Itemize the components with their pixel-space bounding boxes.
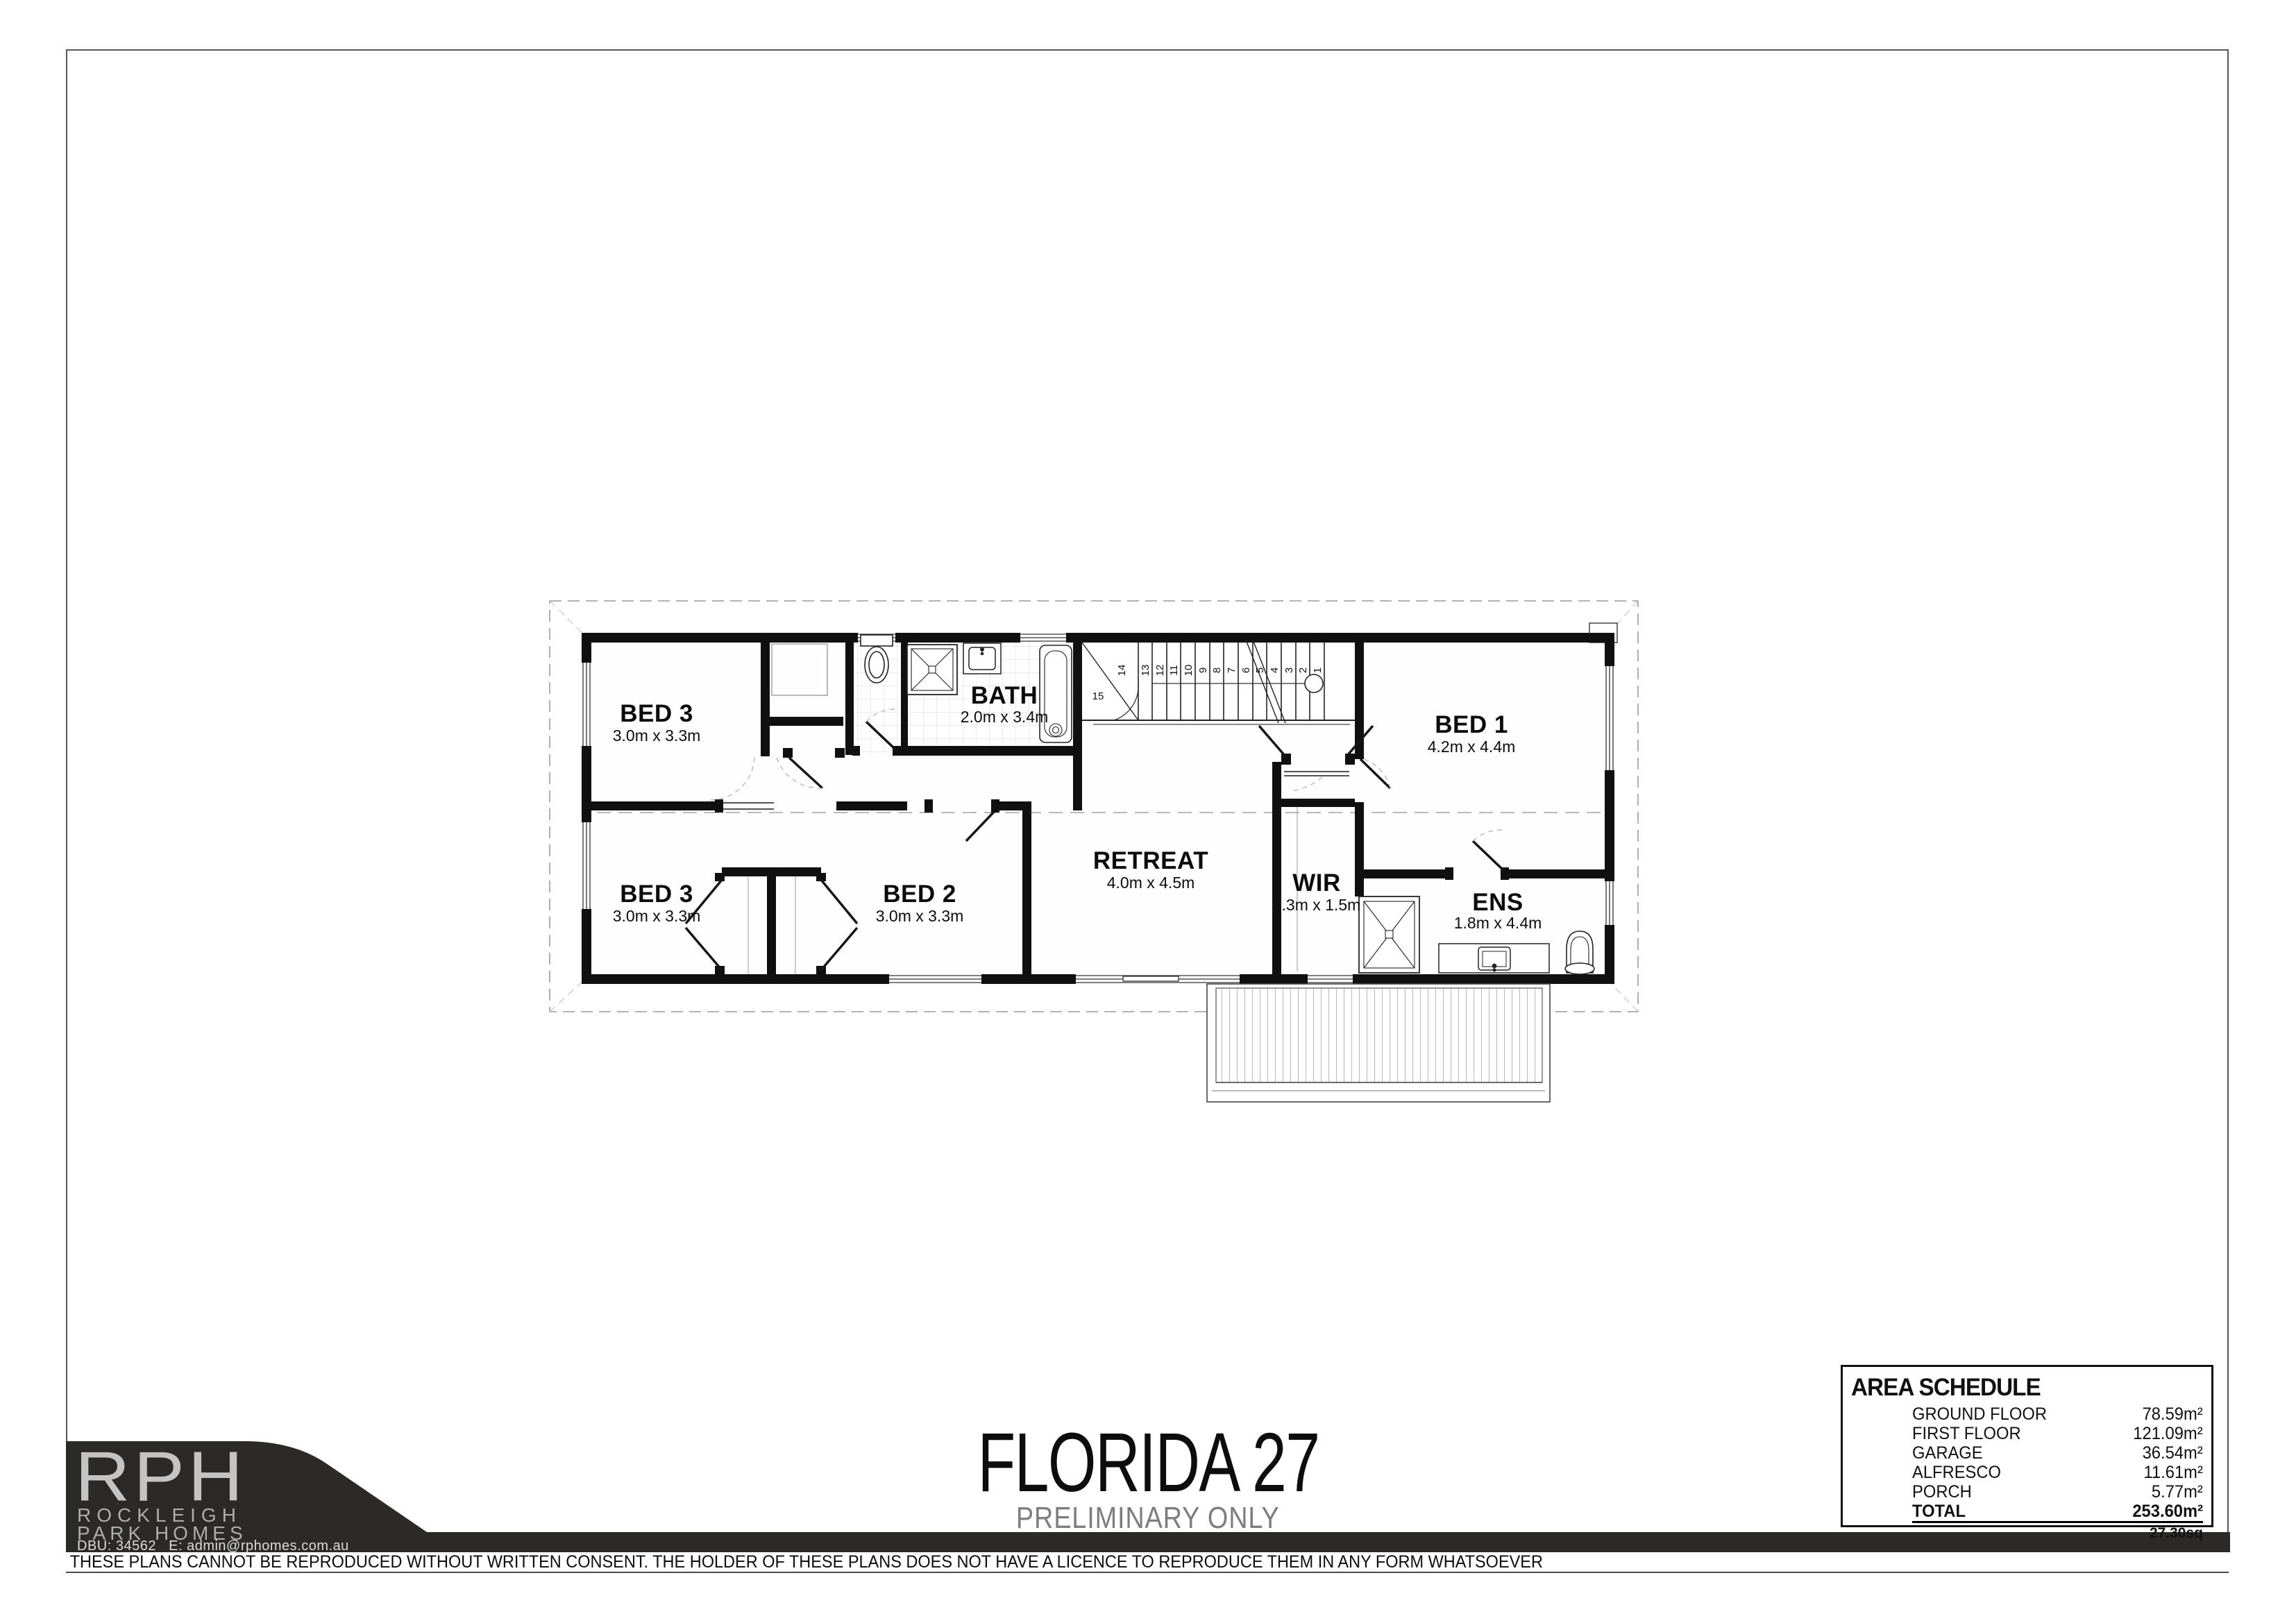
stair-number: 15 <box>1092 690 1104 702</box>
area-row-label: ALFRESCO <box>1912 1463 2001 1482</box>
stair-number: 11 <box>1168 665 1180 676</box>
window <box>582 822 591 909</box>
stair-number: 2 <box>1297 668 1309 673</box>
area-row-value: 121.09m² <box>2134 1424 2203 1443</box>
area-row-value: 36.54m² <box>2143 1443 2203 1463</box>
room-label: ENS <box>1472 889 1523 916</box>
area-total-row: TOTAL 253.60m² <box>1912 1502 2203 1523</box>
stair-number: 4 <box>1269 668 1281 673</box>
room-label: RETREAT <box>1093 847 1208 874</box>
area-row: PORCH 5.77m² <box>1912 1482 2203 1502</box>
area-row: GROUND FLOOR 78.59m² <box>1912 1404 2203 1424</box>
room-dims: 1.8m x 4.4m <box>1454 914 1542 932</box>
room-label: BATH <box>971 682 1038 709</box>
window <box>1076 974 1240 984</box>
stair-number: 12 <box>1154 665 1166 677</box>
area-row-label: GROUND FLOOR <box>1912 1404 2047 1424</box>
floor-plan: 1 2 3 4 5 6 7 8 9 10 11 12 13 14 15 <box>527 583 1680 1138</box>
stair-number: 5 <box>1254 668 1266 673</box>
room-label: BED 1 <box>1435 711 1508 738</box>
stair-number: 7 <box>1226 668 1238 673</box>
area-row-label: GARAGE <box>1912 1443 1983 1463</box>
room-dims: 2.0m x 3.4m <box>961 708 1049 726</box>
room-label: WIR <box>1292 869 1341 897</box>
area-schedule-title: AREA SCHEDULE <box>1851 1374 2041 1402</box>
stair-number: 6 <box>1240 668 1252 673</box>
stair-number: 3 <box>1283 668 1295 673</box>
vanity-icon <box>1439 944 1549 973</box>
stair-number: 13 <box>1140 665 1151 677</box>
area-row-value: 78.59m² <box>2143 1404 2203 1424</box>
room-dims: 4.2m x 4.4m <box>1428 738 1516 756</box>
stair-number: 9 <box>1197 668 1209 673</box>
stair-number: 8 <box>1211 668 1223 673</box>
area-row: FIRST FLOOR 121.09m² <box>1912 1424 2203 1443</box>
shower-icon <box>1359 897 1419 973</box>
area-row-value: 5.77m² <box>2152 1482 2203 1502</box>
room-dims: 4.0m x 4.5m <box>1107 874 1195 892</box>
room-dims: 3.0m x 3.3m <box>613 726 701 745</box>
stairs: 1 2 3 4 5 6 7 8 9 10 11 12 13 14 15 <box>1082 640 1355 724</box>
window <box>1605 881 1614 925</box>
room-dims: 3.0m x 3.3m <box>876 907 964 925</box>
bathtub-icon <box>1040 645 1072 742</box>
room-label: BED 3 <box>620 700 693 727</box>
room-dims: 3.3m x 1.5m <box>1273 896 1361 914</box>
stair-newel <box>1305 674 1323 692</box>
shower-icon <box>907 645 957 695</box>
area-row-label: FIRST FLOOR <box>1912 1424 2021 1443</box>
deck <box>1207 984 1550 1102</box>
room-label: BED 3 <box>620 881 693 908</box>
window <box>582 663 591 746</box>
disclaimer-bar: THESE PLANS CANNOT BE REPRODUCED WITHOUT… <box>66 1552 2229 1573</box>
area-schedule: AREA SCHEDULE GROUND FLOOR 78.59m² FIRST… <box>1841 1365 2213 1527</box>
window <box>1605 666 1614 770</box>
disclaimer-text: THESE PLANS CANNOT BE REPRODUCED WITHOUT… <box>66 1552 1543 1572</box>
area-total-squares: 27.30sq <box>1912 1523 2203 1542</box>
stair-number: 14 <box>1116 665 1128 677</box>
area-row: GARAGE 36.54m² <box>1912 1443 2203 1463</box>
logo-dbu-email: DBU: 34562 E: admin@rphomes.com.au <box>77 1539 349 1553</box>
logo-initials: RPH <box>75 1442 246 1512</box>
window <box>1020 633 1066 643</box>
area-row: ALFRESCO 11.61m² <box>1912 1463 2203 1482</box>
toilet-icon <box>1565 931 1594 974</box>
area-total-label: TOTAL <box>1912 1502 1966 1521</box>
window <box>1308 974 1353 984</box>
room-label: BED 2 <box>883 881 956 908</box>
window <box>889 974 981 984</box>
room-dims: 3.0m x 3.3m <box>613 907 701 925</box>
stair-number: 1 <box>1312 668 1324 673</box>
vanity-icon <box>963 643 1001 674</box>
stair-number: 10 <box>1183 665 1195 677</box>
area-total-value: 253.60m² <box>2132 1502 2203 1521</box>
area-row-value: 11.61m² <box>2144 1463 2203 1482</box>
area-row-label: PORCH <box>1912 1482 1972 1502</box>
